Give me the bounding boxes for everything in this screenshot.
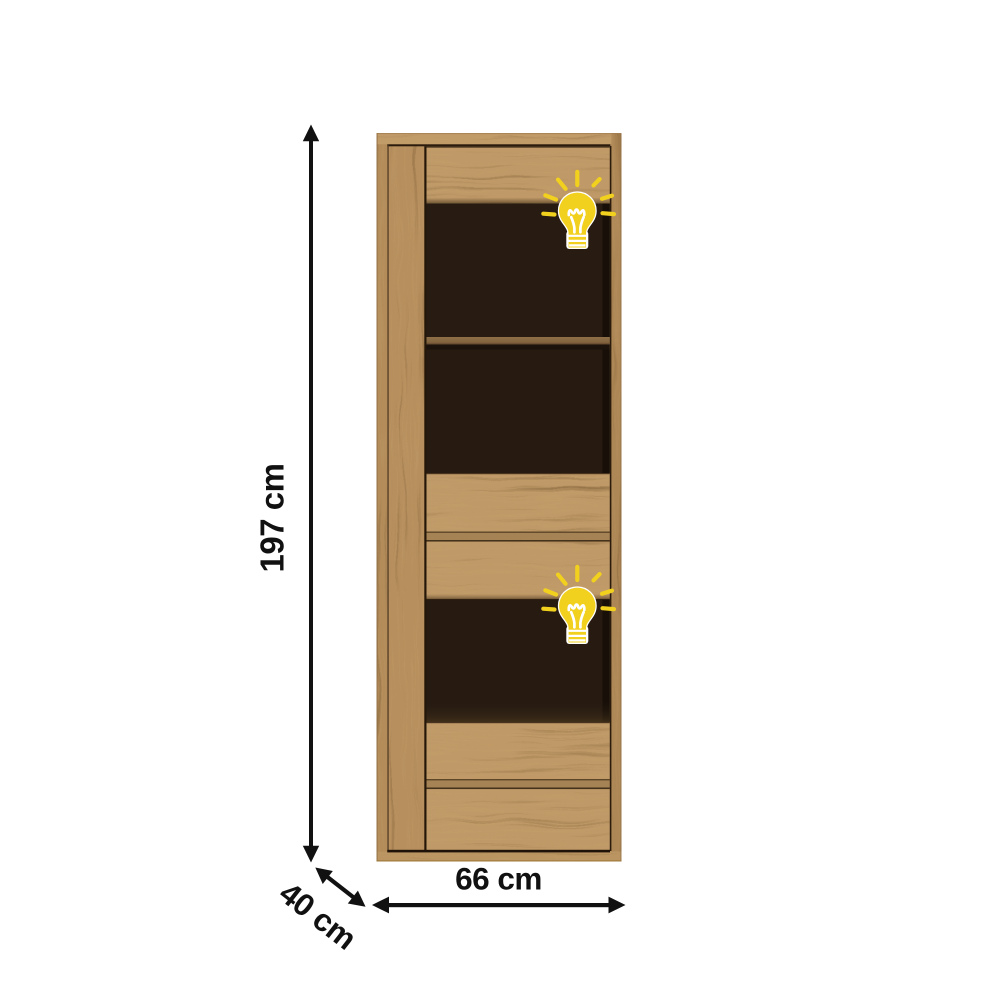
svg-text:197 cm: 197 cm [254, 464, 291, 573]
svg-text:40 cm: 40 cm [273, 875, 364, 957]
svg-text:66 cm: 66 cm [455, 861, 542, 897]
